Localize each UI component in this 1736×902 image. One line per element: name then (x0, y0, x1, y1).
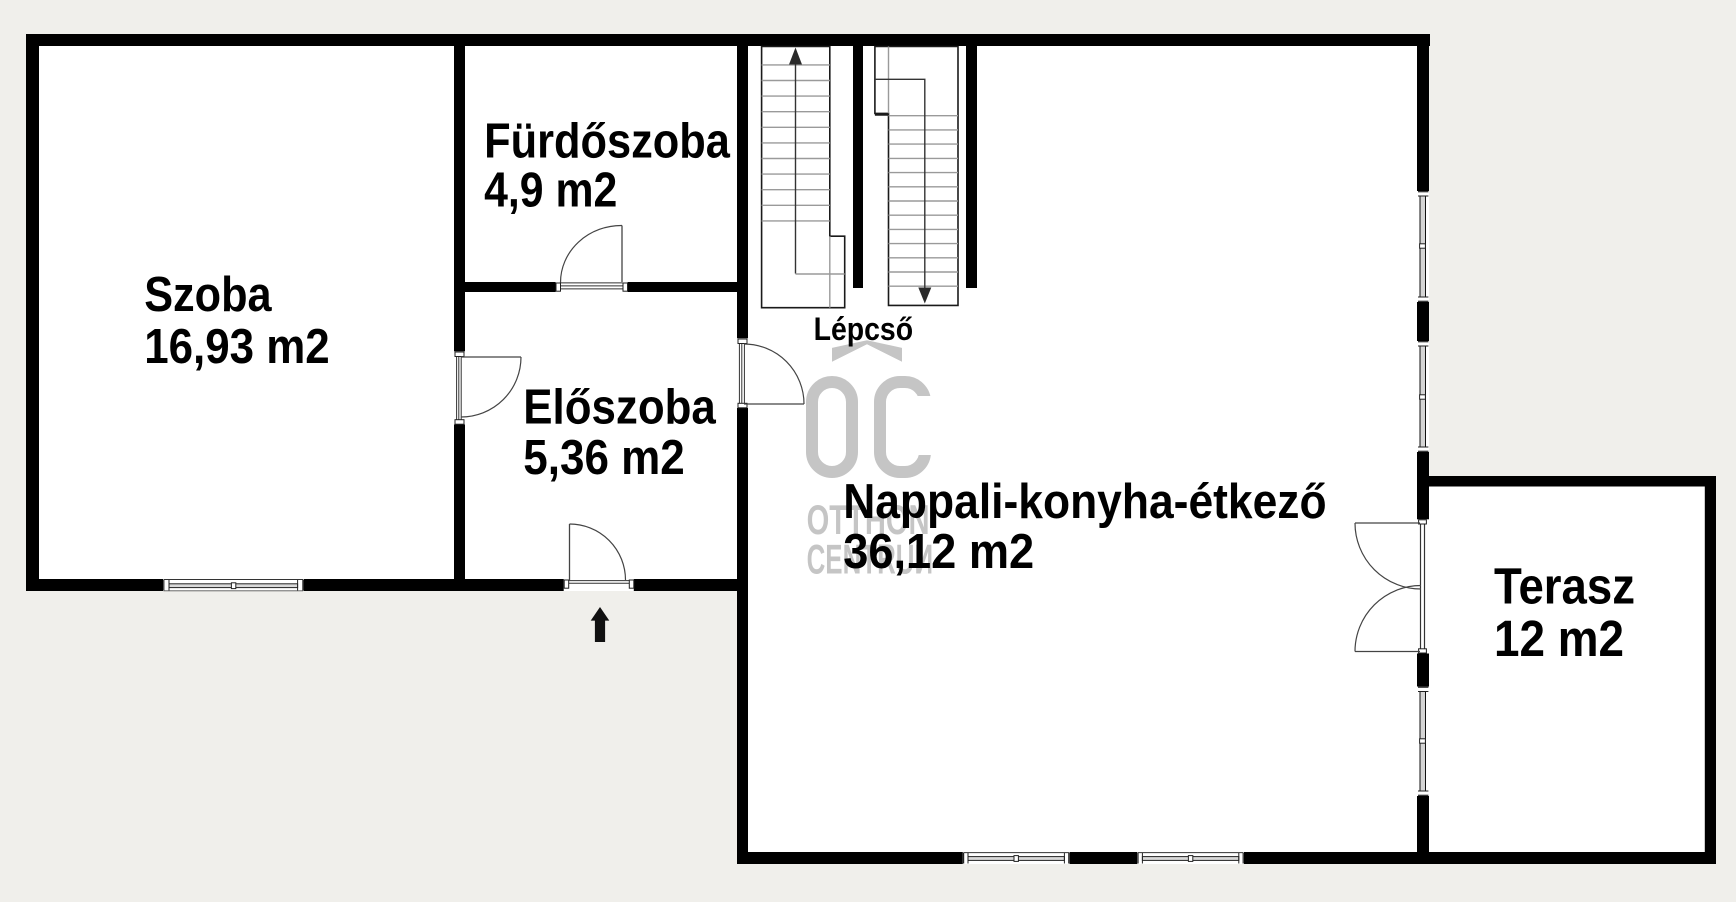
svg-text:Terasz: Terasz (1494, 558, 1635, 615)
svg-text:Lépcső: Lépcső (814, 311, 914, 347)
svg-text:Előszoba: Előszoba (523, 381, 716, 435)
svg-text:16,93 m2: 16,93 m2 (144, 320, 330, 374)
svg-text:Nappali-konyha-étkező: Nappali-konyha-étkező (843, 475, 1326, 529)
svg-text:5,36 m2: 5,36 m2 (523, 431, 685, 485)
svg-text:Fürdőszoba: Fürdőszoba (484, 115, 730, 169)
svg-text:4,9 m2: 4,9 m2 (484, 164, 617, 218)
svg-text:12 m2: 12 m2 (1494, 610, 1624, 667)
svg-text:Szoba: Szoba (144, 268, 272, 322)
svg-text:36,12 m2: 36,12 m2 (843, 525, 1034, 579)
